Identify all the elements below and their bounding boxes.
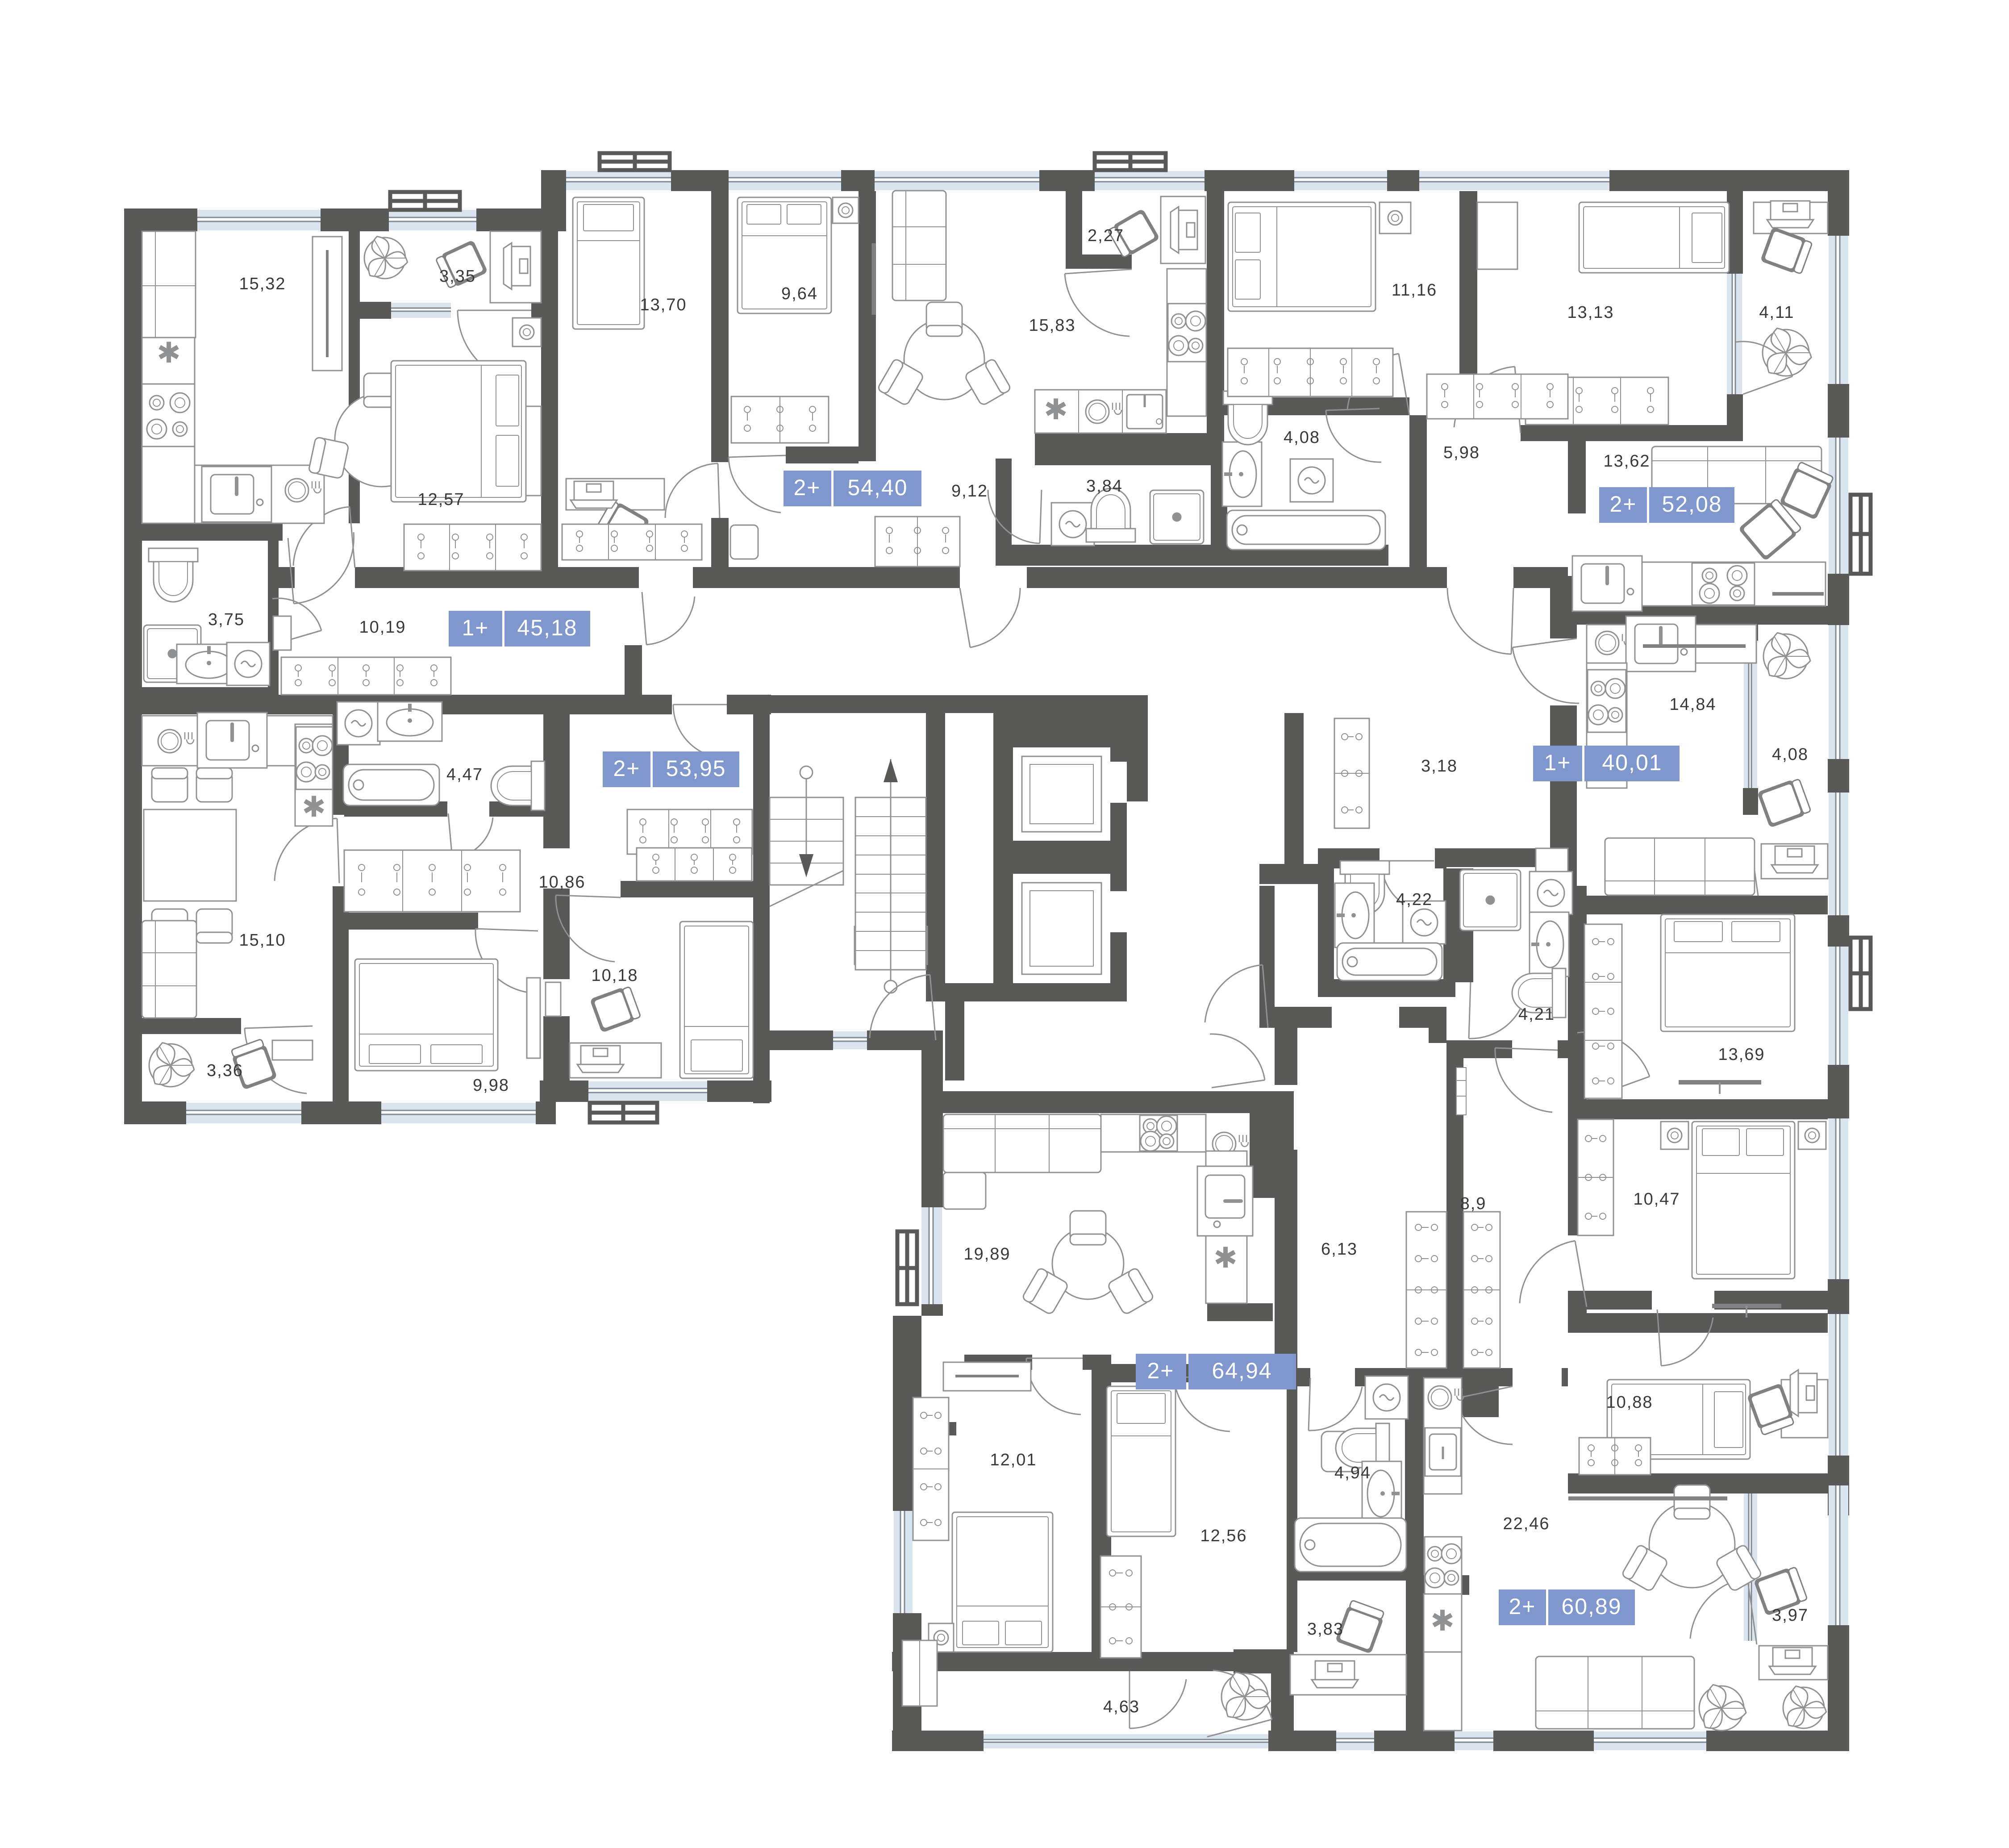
svg-text:3,75: 3,75: [208, 610, 245, 629]
svg-text:4,08: 4,08: [1772, 745, 1809, 764]
svg-text:3,97: 3,97: [1772, 1606, 1809, 1625]
svg-text:✱: ✱: [1213, 1242, 1238, 1274]
svg-text:2+: 2+: [1147, 1358, 1174, 1383]
svg-text:15,32: 15,32: [239, 275, 286, 293]
svg-text:13,62: 13,62: [1603, 452, 1650, 471]
svg-text:12,57: 12,57: [417, 490, 464, 509]
svg-text:10,88: 10,88: [1606, 1393, 1653, 1412]
svg-text:4,21: 4,21: [1518, 1005, 1555, 1024]
svg-text:4,47: 4,47: [446, 765, 483, 784]
svg-text:6,13: 6,13: [1321, 1240, 1358, 1259]
svg-text:2+: 2+: [1509, 1594, 1536, 1619]
svg-text:45,18: 45,18: [517, 615, 577, 640]
svg-text:15,83: 15,83: [1029, 316, 1075, 335]
svg-text:14,84: 14,84: [1669, 695, 1716, 714]
svg-text:10,47: 10,47: [1633, 1190, 1680, 1209]
svg-text:22,46: 22,46: [1503, 1514, 1550, 1533]
svg-text:13,13: 13,13: [1567, 303, 1614, 322]
svg-text:1+: 1+: [1544, 750, 1571, 775]
svg-text:10,19: 10,19: [359, 618, 406, 637]
svg-text:9,98: 9,98: [473, 1076, 509, 1095]
svg-text:4,63: 4,63: [1103, 1698, 1140, 1716]
svg-text:✱: ✱: [157, 337, 181, 369]
svg-text:12,01: 12,01: [990, 1451, 1037, 1469]
svg-text:52,08: 52,08: [1662, 492, 1722, 517]
svg-text:3,83: 3,83: [1307, 1620, 1344, 1639]
svg-text:3,84: 3,84: [1086, 477, 1123, 496]
svg-text:4,11: 4,11: [1759, 303, 1794, 322]
svg-text:13,70: 13,70: [640, 296, 687, 314]
svg-text:10,86: 10,86: [538, 873, 585, 892]
svg-text:8,9: 8,9: [1460, 1194, 1487, 1213]
svg-text:19,89: 19,89: [963, 1245, 1010, 1264]
svg-text:3,35: 3,35: [439, 267, 476, 286]
svg-text:13,69: 13,69: [1718, 1045, 1765, 1064]
svg-text:1+: 1+: [462, 615, 489, 640]
svg-text:9,64: 9,64: [781, 284, 818, 303]
svg-text:64,94: 64,94: [1212, 1358, 1272, 1383]
svg-text:3,18: 3,18: [1421, 757, 1458, 776]
svg-text:✱: ✱: [1430, 1605, 1455, 1637]
svg-text:53,95: 53,95: [666, 756, 726, 781]
svg-text:12,56: 12,56: [1200, 1527, 1247, 1545]
svg-text:5,98: 5,98: [1443, 443, 1480, 462]
svg-text:2+: 2+: [1609, 492, 1637, 517]
svg-text:15,10: 15,10: [239, 931, 286, 950]
svg-text:3,36: 3,36: [207, 1061, 243, 1080]
svg-text:10,18: 10,18: [591, 966, 638, 985]
svg-text:2,27: 2,27: [1088, 226, 1124, 245]
svg-text:4,08: 4,08: [1284, 428, 1320, 447]
svg-text:54,40: 54,40: [847, 475, 908, 500]
svg-text:40,01: 40,01: [1602, 750, 1662, 775]
svg-text:4,94: 4,94: [1334, 1464, 1371, 1482]
svg-text:9,12: 9,12: [951, 482, 988, 501]
svg-text:2+: 2+: [793, 475, 821, 500]
svg-text:11,16: 11,16: [1392, 281, 1437, 300]
svg-text:✱: ✱: [1044, 393, 1068, 425]
svg-text:4,22: 4,22: [1396, 890, 1433, 909]
svg-text:✱: ✱: [302, 791, 326, 823]
svg-text:60,89: 60,89: [1561, 1594, 1621, 1619]
svg-text:2+: 2+: [613, 756, 640, 781]
